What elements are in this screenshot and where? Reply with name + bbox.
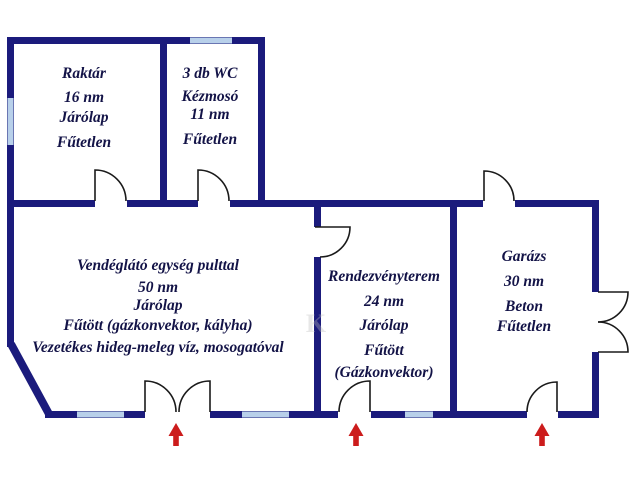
- room-heating-detail: (Gázkonvektor): [334, 364, 433, 381]
- window: [190, 38, 232, 44]
- window: [8, 98, 14, 145]
- door-opening: [145, 411, 210, 418]
- room-wc: 3 db WC Kézmosó 11 nm Fűtetlen: [181, 65, 239, 148]
- door-arc: [598, 322, 628, 352]
- room-label: Raktár: [61, 65, 107, 82]
- wall-segment: [45, 411, 599, 418]
- wall-segment: [7, 207, 14, 347]
- room-area: 50 nm: [138, 279, 178, 296]
- door-arc: [339, 381, 370, 412]
- wall-segment: [450, 207, 457, 411]
- room-label: 3 db WC: [182, 65, 239, 82]
- room-heating: Fűtetlen: [56, 134, 111, 151]
- room-floor: Járólap: [58, 109, 108, 126]
- room-vendeglato: Vendéglátó egység pulttal 50 nm Járólap …: [32, 257, 284, 356]
- window: [242, 412, 289, 418]
- door-opening: [483, 200, 515, 207]
- door-opening: [95, 200, 127, 207]
- entrance-arrow-icon: [349, 423, 364, 446]
- room-area: 16 nm: [64, 89, 104, 106]
- window: [77, 412, 124, 418]
- room-floor: Járólap: [132, 297, 182, 314]
- room-label: Rendezvényterem: [327, 268, 440, 285]
- wall-segment: [160, 37, 167, 207]
- room-floor: Járólap: [358, 317, 408, 334]
- room-heating: Fűtetlen: [182, 131, 237, 148]
- door-arc: [198, 170, 229, 201]
- room-label: Garázs: [502, 248, 547, 265]
- door-arc: [484, 171, 514, 201]
- entrance-arrow-icon: [535, 423, 550, 446]
- room-heating: Fűtött (gázkonvektor, kályha): [62, 317, 252, 334]
- entrance-arrow-icon: [169, 423, 184, 446]
- door-opening: [592, 292, 599, 352]
- door-opening: [527, 411, 558, 418]
- room-heating: Fűtött: [363, 342, 404, 359]
- door-arc: [179, 381, 210, 412]
- room-utilities: Vezetékes hideg-meleg víz, mosogatóval: [32, 339, 284, 356]
- wall-segment: [258, 37, 265, 207]
- entrance-arrows: [169, 423, 550, 446]
- room-area: 24 nm: [363, 293, 404, 310]
- door-opening: [314, 227, 321, 257]
- room-area: 30 nm: [503, 273, 544, 290]
- room-label: Kézmosó: [181, 88, 239, 105]
- room-label: Vendéglátó egység pulttal: [77, 257, 240, 274]
- door-opening: [198, 200, 230, 207]
- room-heating: Fűtetlen: [496, 318, 551, 335]
- floor-plan: K Raktár 16 nm Járólap Fűtetlen 3 db WC …: [0, 0, 640, 480]
- door-arc: [598, 292, 628, 322]
- room-floor: Beton: [504, 298, 543, 315]
- window: [405, 412, 433, 418]
- watermark: K: [306, 309, 327, 338]
- door-arc: [527, 382, 557, 412]
- room-rendezvenyterem: Rendezvényterem 24 nm Járólap Fűtött (Gá…: [327, 268, 440, 381]
- room-garazs: Garázs 30 nm Beton Fűtetlen: [496, 248, 551, 335]
- room-raktar: Raktár 16 nm Járólap Fűtetlen: [56, 65, 111, 151]
- door-arc: [95, 170, 126, 201]
- door-opening: [338, 411, 371, 418]
- room-area: 11 nm: [190, 106, 229, 123]
- door-arc: [145, 381, 176, 412]
